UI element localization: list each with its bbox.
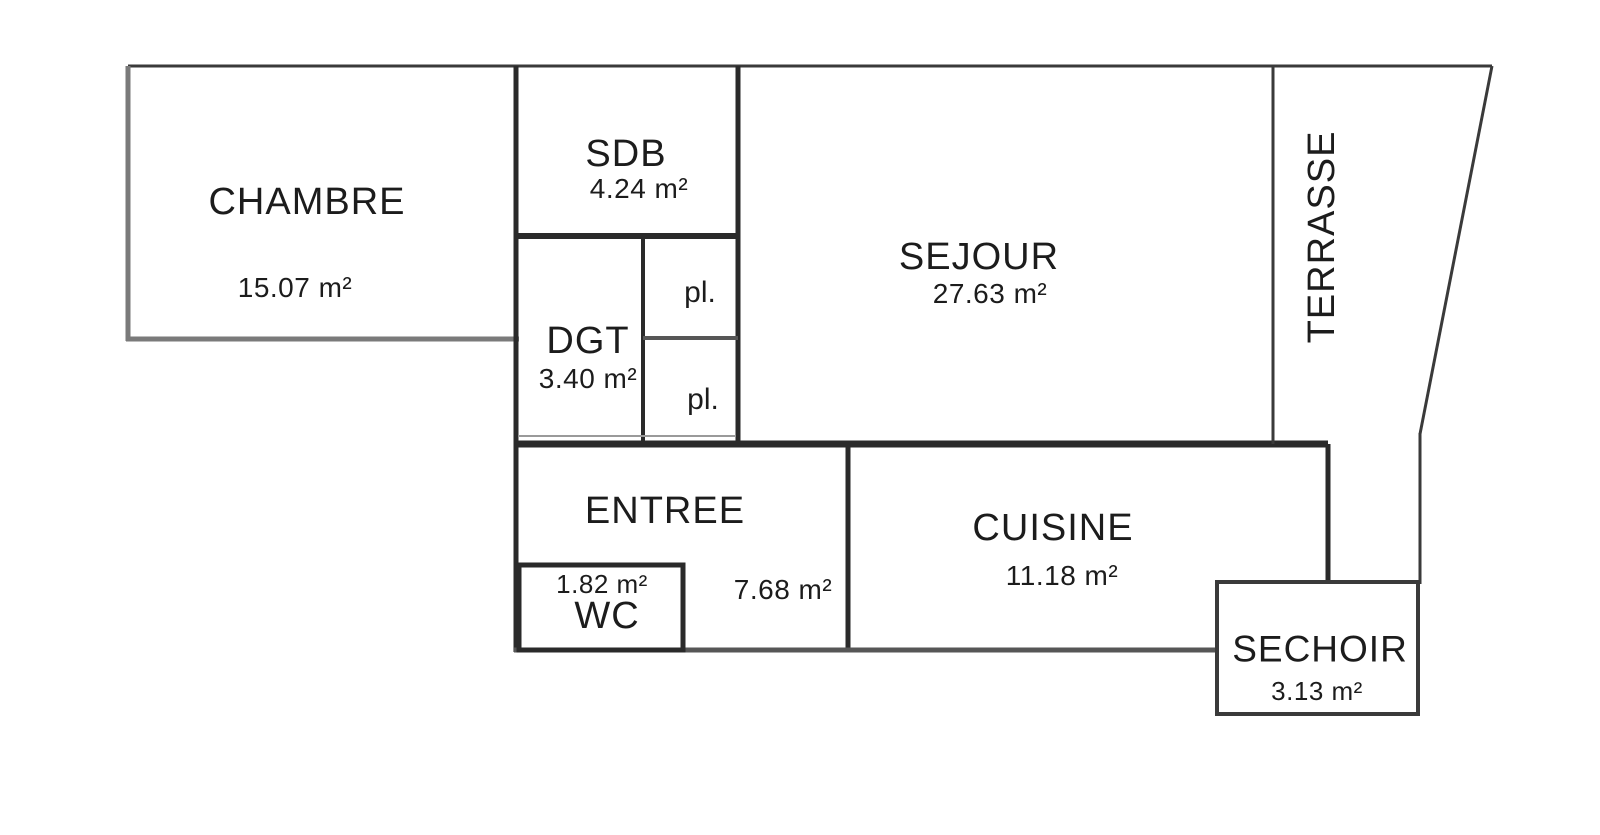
terrasse-label: TERRASSE [1303,131,1341,344]
dgt-area: 3.40 m² [539,365,637,393]
wc-label: WC [574,597,639,635]
floor-plan-walls [0,0,1600,835]
wc-area: 1.82 m² [556,571,648,597]
sechoir-area: 3.13 m² [1271,678,1363,704]
entree-label: ENTREE [585,492,745,530]
cuisine-label: CUISINE [972,509,1133,547]
chambre-label: CHAMBRE [208,183,405,221]
wall-terrasse-diagonal [1420,66,1492,434]
chambre-area: 15.07 m² [238,274,353,302]
dgt-label: DGT [546,322,629,360]
placard-bottom-label: pl. [687,385,719,415]
sdb-label: SDB [585,135,666,173]
sejour-label: SEJOUR [899,238,1059,276]
placard-top-label: pl. [684,278,716,308]
floor-plan: CHAMBRE 15.07 m² SDB 4.24 m² SEJOUR 27.6… [0,0,1600,835]
cuisine-area: 11.18 m² [1006,562,1118,590]
sejour-area: 27.63 m² [933,280,1048,308]
sdb-area: 4.24 m² [590,175,688,203]
entree-area: 7.68 m² [734,576,832,604]
sechoir-label: SECHOIR [1232,631,1408,668]
